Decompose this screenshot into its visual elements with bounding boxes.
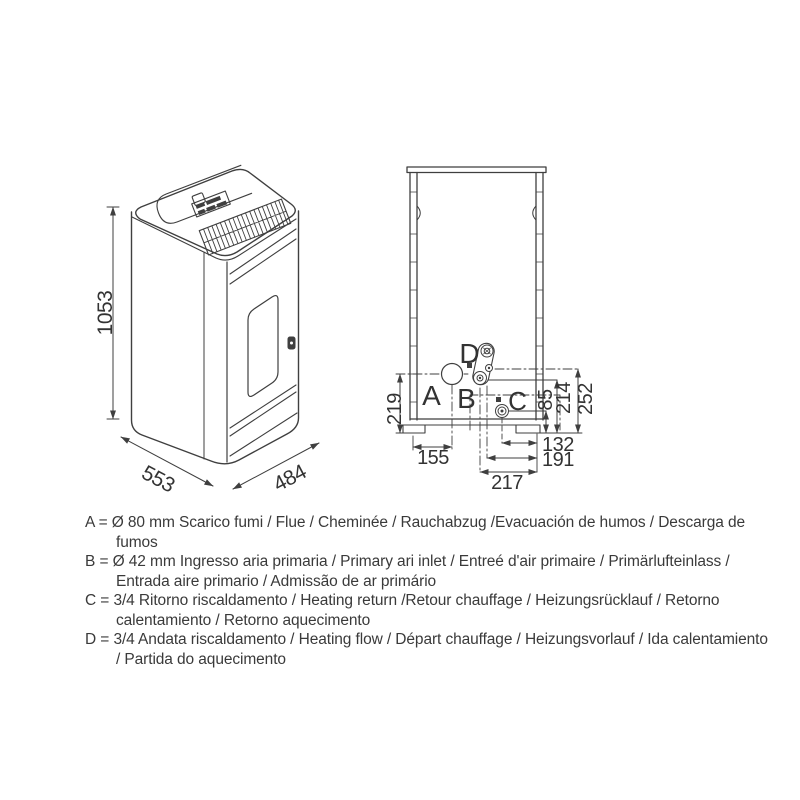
label-d: D (459, 338, 478, 369)
rear-foot-right (516, 425, 540, 433)
dim-width-value: 484 (270, 460, 311, 496)
dim-depth-value: 553 (138, 461, 178, 497)
heating-return-c (496, 405, 509, 418)
dim-155: 155 (417, 447, 449, 469)
dim-252: 252 (575, 383, 597, 415)
legend-item-d: D = 3/4 Andata riscaldamento / Heating f… (85, 630, 769, 669)
flange-notches (417, 206, 536, 220)
legend-item-b: B = Ø 42 mm Ingresso aria primaria / Pri… (85, 552, 769, 591)
rear-left-flange (410, 173, 417, 421)
rear-top-cap (407, 167, 546, 173)
bracket-mid-port (486, 365, 493, 372)
dim-219: 219 (384, 393, 406, 425)
label-c: C (508, 386, 526, 416)
legend-item-c: C = 3/4 Ritorno riscaldamento / Heating … (85, 591, 769, 630)
label-b: B (457, 383, 475, 414)
dim-214: 214 (553, 382, 575, 414)
dim-191: 191 (542, 449, 574, 471)
legend: A = Ø 80 mm Scarico fumi / Flue / Chemin… (85, 513, 769, 669)
door-window (248, 296, 278, 397)
technical-sheet-page: 1053 553 484 (0, 0, 800, 800)
door-bottom-trim (230, 385, 296, 436)
rear-foot-left (403, 425, 425, 433)
legend-item-a: A = Ø 80 mm Scarico fumi / Flue / Chemin… (85, 513, 769, 552)
iso-stove-view: 1053 553 484 (80, 150, 375, 502)
door-handle-pin (290, 342, 293, 345)
air-inlet-b (474, 372, 487, 385)
stove-top-face (136, 169, 296, 255)
dim-height-value: 1053 (94, 291, 117, 336)
label-a: A (422, 380, 441, 411)
rear-right-flange (536, 173, 543, 421)
marker-square-c (496, 397, 501, 402)
rear-connections-view: A B C D 219 155 85 214 252 132 191 217 (375, 150, 607, 502)
dim-217: 217 (491, 472, 523, 494)
bracket-top-bolt (481, 345, 493, 357)
